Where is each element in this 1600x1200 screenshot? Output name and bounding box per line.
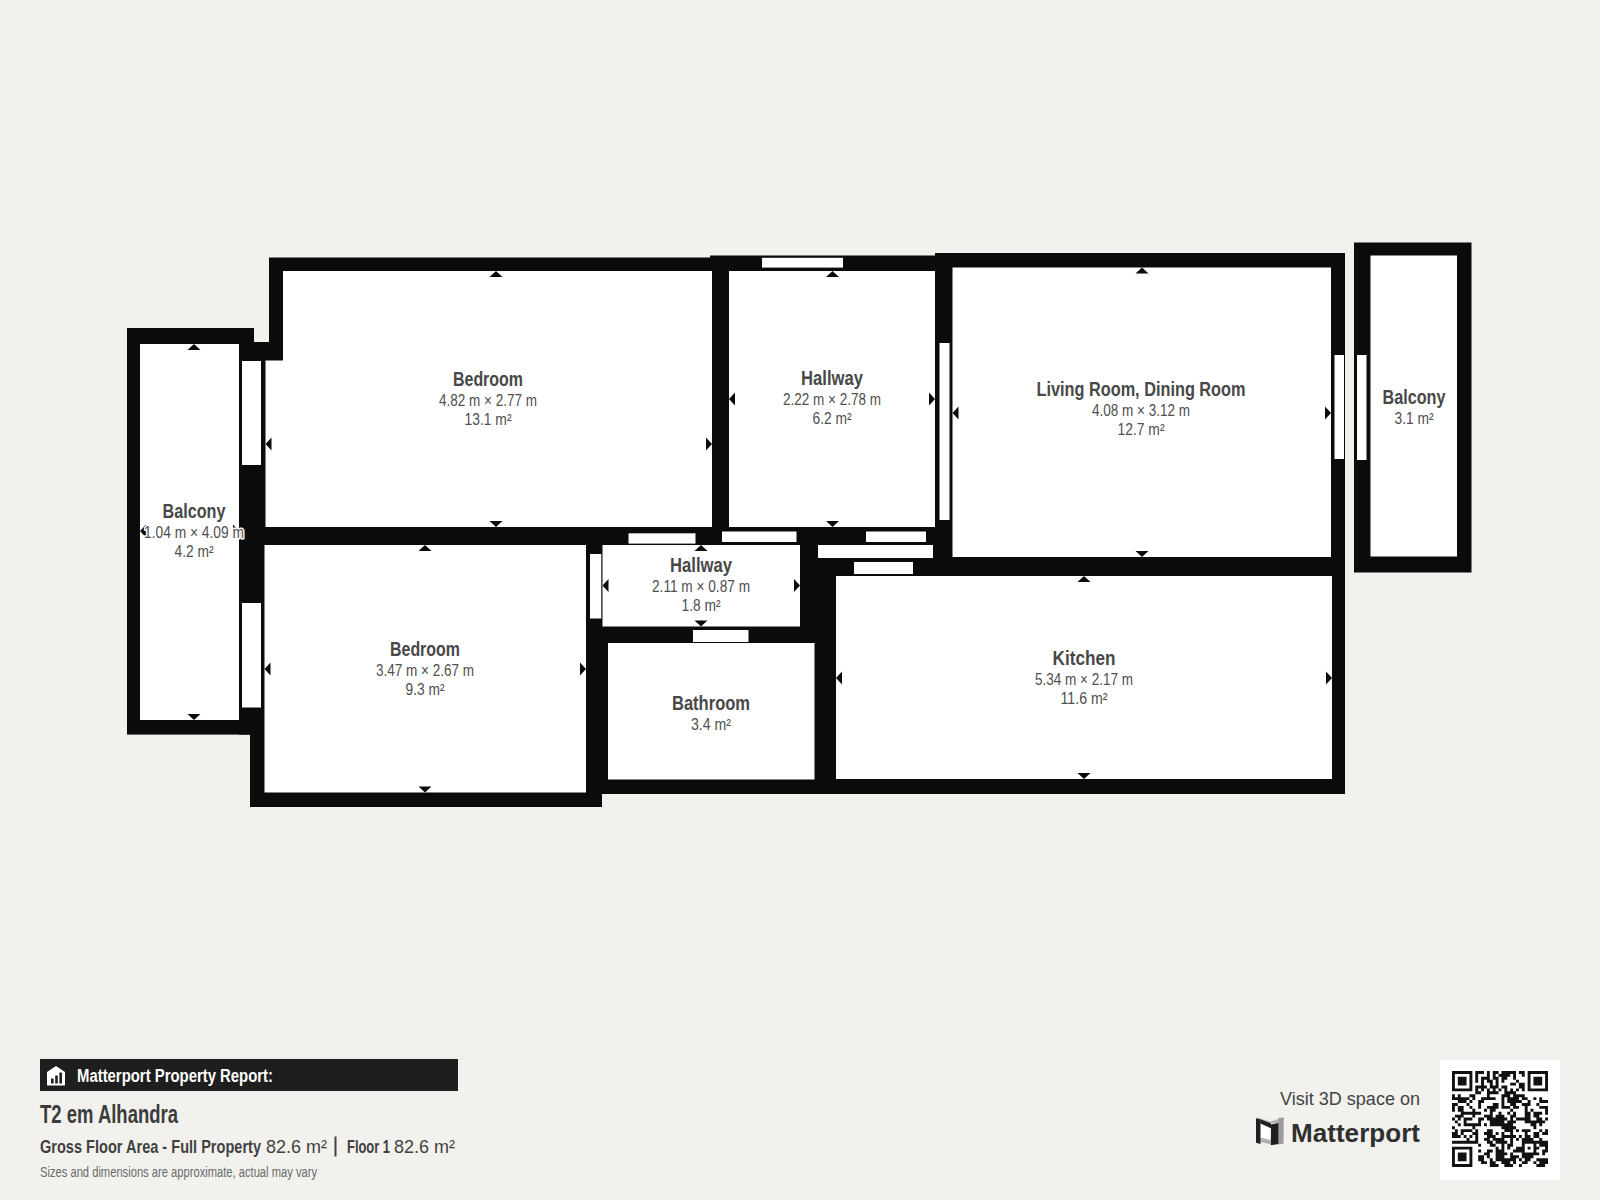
svg-text:Kitchen: Kitchen xyxy=(1053,647,1116,669)
svg-text:13.1 m²: 13.1 m² xyxy=(465,411,513,428)
svg-text:11.6 m²: 11.6 m² xyxy=(1061,690,1109,707)
svg-text:9.3 m²: 9.3 m² xyxy=(406,681,446,698)
svg-text:6.2 m²: 6.2 m² xyxy=(813,410,853,427)
svg-text:Hallway: Hallway xyxy=(801,367,864,389)
svg-text:2.22 m × 2.78 m: 2.22 m × 2.78 m xyxy=(783,391,881,408)
svg-text:82.6 m²: 82.6 m² xyxy=(266,1136,327,1157)
svg-text:12.7 m²: 12.7 m² xyxy=(1118,421,1166,438)
svg-text:Balcony: Balcony xyxy=(1383,386,1447,408)
svg-text:4.08 m × 3.12 m: 4.08 m × 3.12 m xyxy=(1092,402,1190,419)
svg-text:Bathroom: Bathroom xyxy=(672,692,750,714)
svg-text:Hallway: Hallway xyxy=(670,554,733,576)
svg-text:Matterport Property Report:: Matterport Property Report: xyxy=(77,1066,273,1086)
svg-text:3.4 m²: 3.4 m² xyxy=(691,716,732,733)
svg-text:Bedroom: Bedroom xyxy=(453,368,523,390)
svg-text:Living Room, Dining Room: Living Room, Dining Room xyxy=(1037,378,1246,400)
svg-text:4.2 m²: 4.2 m² xyxy=(175,543,215,560)
svg-text:1.8 m²: 1.8 m² xyxy=(682,597,722,614)
svg-text:Gross Floor Area - Full Proper: Gross Floor Area - Full Property xyxy=(40,1136,262,1157)
svg-text:T2 em Alhandra: T2 em Alhandra xyxy=(40,1099,178,1129)
svg-text:Visit 3D space on: Visit 3D space on xyxy=(1280,1089,1420,1109)
svg-text:5.34 m × 2.17 m: 5.34 m × 2.17 m xyxy=(1035,671,1133,688)
svg-text:Bedroom: Bedroom xyxy=(390,638,460,660)
svg-text:2.11 m × 0.87 m: 2.11 m × 0.87 m xyxy=(652,578,750,595)
svg-text:1.04 m × 4.09 m: 1.04 m × 4.09 m xyxy=(144,524,244,541)
svg-text:4.82 m × 2.77 m: 4.82 m × 2.77 m xyxy=(439,392,537,409)
svg-text:3.1 m²: 3.1 m² xyxy=(1395,410,1435,427)
svg-text:Sizes and dimensions are appro: Sizes and dimensions are approximate, ac… xyxy=(40,1163,317,1180)
svg-text:82.6 m²: 82.6 m² xyxy=(394,1136,455,1157)
svg-text:Matterport: Matterport xyxy=(1291,1118,1420,1148)
svg-text:Floor 1: Floor 1 xyxy=(347,1136,390,1157)
svg-text:3.47 m × 2.67 m: 3.47 m × 2.67 m xyxy=(376,662,474,679)
svg-text:Balcony: Balcony xyxy=(163,500,227,522)
